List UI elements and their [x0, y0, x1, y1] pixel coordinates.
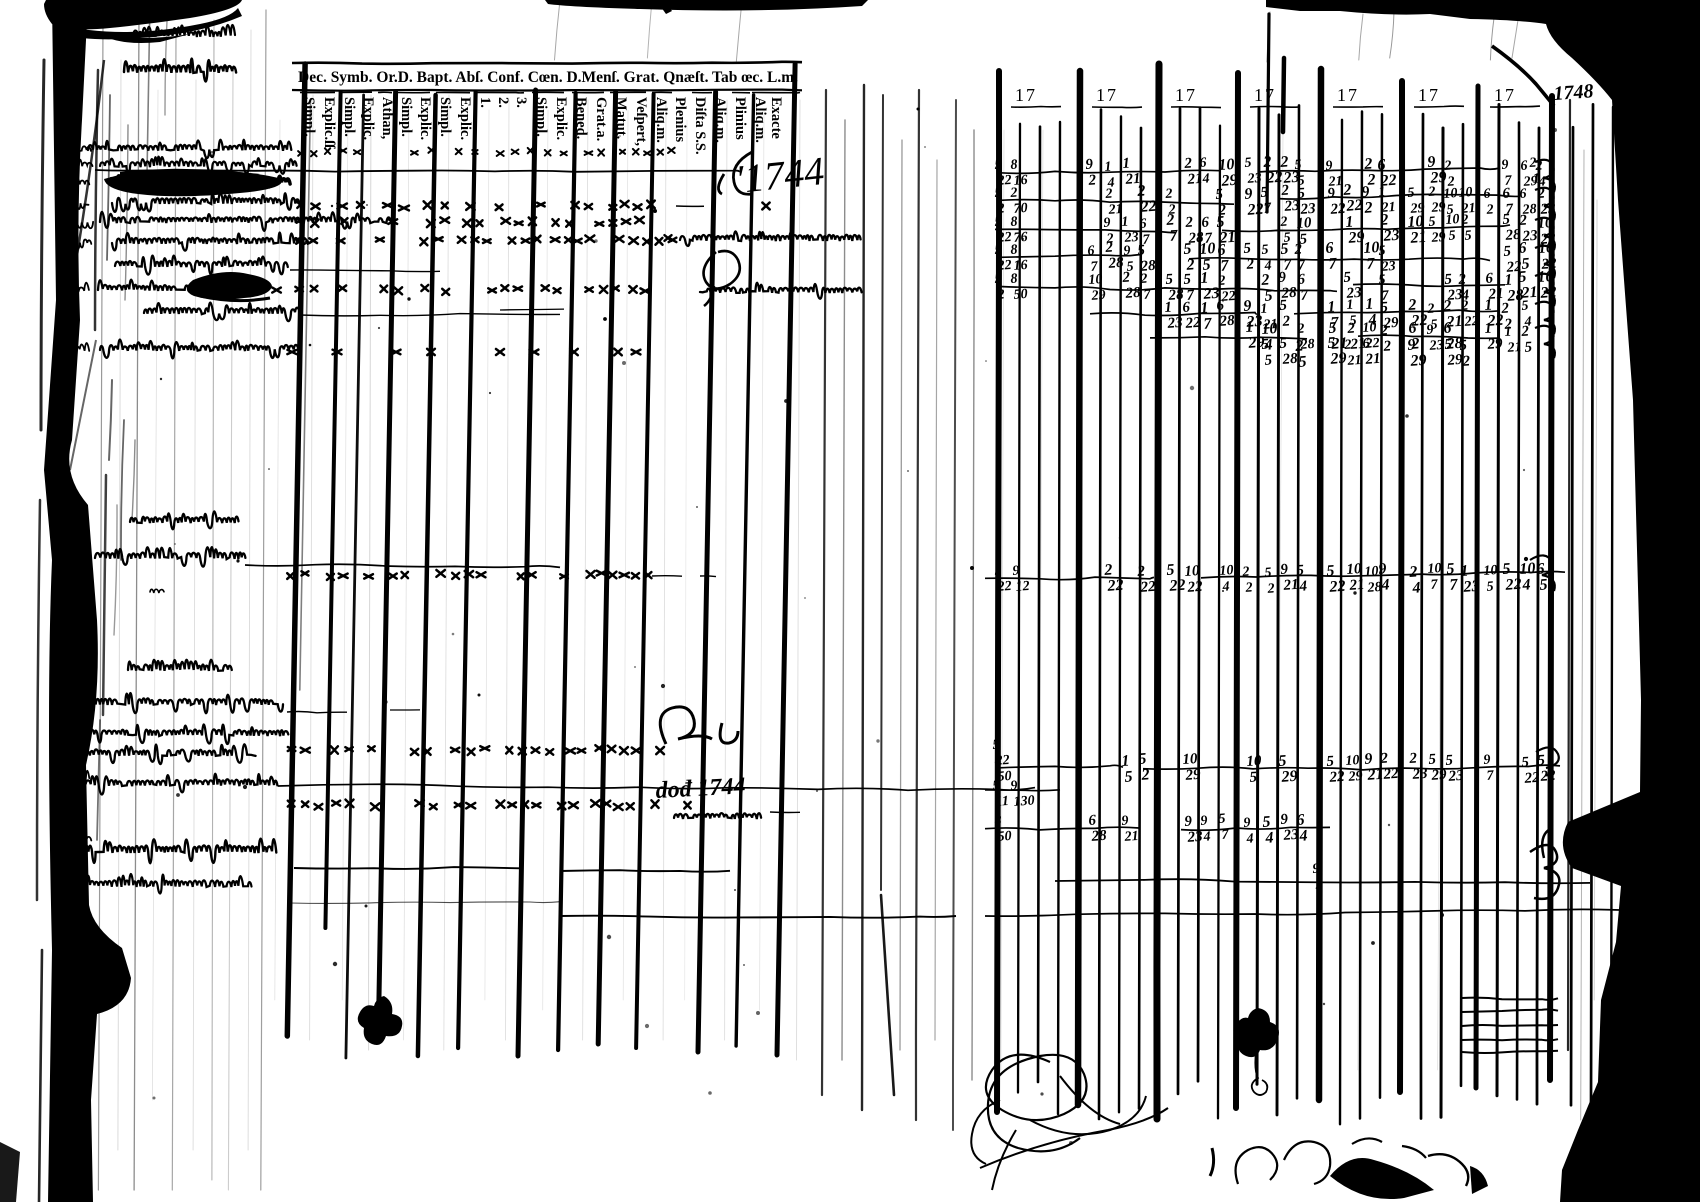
svg-text:28: 28 — [1218, 313, 1236, 330]
svg-text:1: 1 — [1504, 325, 1512, 340]
svg-text:22: 22 — [1184, 315, 1202, 332]
svg-text:22: 22 — [1139, 198, 1157, 216]
svg-text:2: 2 — [1262, 153, 1272, 171]
svg-text:6: 6 — [1139, 217, 1147, 232]
svg-text:2: 2 — [1293, 241, 1303, 258]
svg-text:9: 9 — [1427, 153, 1436, 171]
svg-text:29: 29 — [1347, 769, 1363, 785]
svg-text:6: 6 — [1377, 156, 1386, 174]
svg-text:2: 2 — [1379, 211, 1389, 229]
svg-text:2: 2 — [1121, 269, 1131, 286]
svg-text:8: 8 — [1010, 272, 1018, 287]
svg-text:2: 2 — [1408, 563, 1418, 581]
svg-text:2: 2 — [1244, 580, 1253, 596]
svg-text:2: 2 — [1518, 212, 1528, 229]
svg-text:2: 2 — [1164, 187, 1173, 203]
svg-text:29: 29 — [1430, 230, 1446, 246]
svg-text:5: 5 — [1521, 299, 1529, 314]
svg-text:5: 5 — [1166, 561, 1175, 579]
svg-text:10: 10 — [1088, 272, 1103, 288]
svg-text:2: 2 — [1363, 155, 1373, 173]
svg-text:21: 21 — [1186, 171, 1203, 188]
svg-text:5: 5 — [1280, 240, 1289, 258]
svg-text:22: 22 — [1523, 770, 1541, 787]
svg-text:5: 5 — [1298, 353, 1307, 371]
svg-text:21: 21 — [1366, 766, 1384, 784]
svg-text:Simpl.: Simpl. — [398, 97, 414, 137]
svg-text:9: 9 — [1103, 216, 1111, 231]
svg-text:23: 23 — [1462, 578, 1480, 596]
svg-text:9: 9 — [1325, 159, 1333, 174]
svg-text:1.: 1. — [477, 97, 493, 108]
svg-text:22: 22 — [1139, 579, 1157, 596]
svg-text:5: 5 — [1378, 244, 1386, 259]
svg-text:1: 1 — [1378, 185, 1386, 200]
svg-text:2: 2 — [1103, 561, 1113, 579]
svg-text:5: 5 — [1539, 576, 1548, 594]
svg-text:10: 10 — [1364, 564, 1379, 580]
svg-text:29: 29 — [1409, 352, 1427, 370]
svg-text:9: 9 — [1244, 185, 1253, 203]
svg-text:5: 5 — [1428, 215, 1436, 230]
svg-text:2: 2 — [1266, 581, 1275, 597]
svg-text:2: 2 — [1087, 172, 1097, 189]
svg-text:17: 17 — [1494, 85, 1516, 105]
svg-text:3.: 3. — [513, 97, 529, 108]
svg-text:22: 22 — [1382, 766, 1400, 783]
svg-text:1: 1 — [1121, 215, 1129, 230]
svg-text:8: 8 — [1010, 243, 1018, 258]
svg-text:9: 9 — [1501, 158, 1509, 173]
svg-text:4: 4 — [1298, 827, 1308, 845]
svg-text:28: 28 — [1090, 828, 1108, 845]
svg-text:29: 29 — [1430, 767, 1448, 784]
svg-text:22: 22 — [1328, 769, 1346, 786]
svg-text:21: 21 — [1506, 340, 1522, 356]
svg-text:8: 8 — [1010, 158, 1018, 173]
svg-text:1: 1 — [1484, 296, 1493, 314]
svg-text:5: 5 — [1262, 813, 1271, 831]
svg-text:5: 5 — [994, 186, 1002, 201]
svg-text:5: 5 — [992, 779, 1000, 794]
svg-text:9: 9 — [1426, 323, 1434, 338]
svg-text:12: 12 — [1015, 579, 1030, 595]
svg-text:6: 6 — [1483, 187, 1491, 202]
svg-text:10: 10 — [1445, 212, 1460, 228]
svg-text:5: 5 — [994, 215, 1002, 230]
svg-text:6: 6 — [1443, 319, 1452, 337]
svg-text:29: 29 — [1446, 352, 1464, 369]
svg-text:2: 2 — [1379, 322, 1389, 339]
svg-text:10: 10 — [1427, 561, 1442, 577]
svg-text:29: 29 — [1486, 336, 1504, 353]
svg-text:6: 6 — [1408, 319, 1417, 337]
svg-text:9: 9 — [1364, 750, 1373, 768]
svg-text:5: 5 — [1327, 334, 1336, 352]
svg-text:2: 2 — [1279, 215, 1288, 231]
svg-text:21: 21 — [1364, 351, 1381, 368]
svg-text:1: 1 — [1104, 160, 1112, 175]
svg-text:1: 1 — [1365, 295, 1374, 313]
svg-text:2: 2 — [1104, 187, 1113, 203]
svg-text:2: 2 — [1520, 323, 1530, 340]
svg-text:9: 9 — [1312, 862, 1320, 877]
svg-text:23: 23 — [1447, 768, 1465, 785]
svg-text:6: 6 — [1296, 811, 1305, 829]
svg-text:9: 9 — [1361, 183, 1370, 201]
svg-text:29: 29 — [1184, 767, 1202, 784]
svg-text:2: 2 — [1314, 877, 1323, 893]
svg-text:Diſta S.S.: Diſta S.S. — [692, 97, 708, 155]
svg-text:1: 1 — [1460, 562, 1469, 580]
svg-text:9: 9 — [1407, 336, 1416, 354]
svg-text:2: 2 — [1346, 320, 1356, 337]
svg-text:5: 5 — [994, 158, 1002, 173]
svg-text:2: 2 — [1442, 297, 1452, 315]
svg-text:10: 10 — [1519, 560, 1536, 578]
svg-text:9: 9 — [1483, 753, 1491, 768]
svg-text:2: 2 — [1165, 211, 1175, 229]
svg-text:5: 5 — [1486, 579, 1494, 594]
svg-text:17: 17 — [1096, 85, 1118, 105]
svg-text:10: 10 — [1296, 215, 1313, 232]
svg-text:2: 2 — [1342, 181, 1352, 199]
svg-text:1: 1 — [1200, 269, 1209, 287]
svg-text:1: 1 — [1532, 171, 1540, 186]
svg-text:9: 9 — [1012, 564, 1020, 579]
svg-text:2: 2 — [1183, 155, 1193, 172]
svg-text:4: 4 — [1245, 831, 1254, 847]
svg-text:9: 9 — [1378, 560, 1387, 578]
svg-text:2: 2 — [1104, 239, 1114, 256]
svg-text:5: 5 — [1407, 186, 1415, 201]
svg-text:5: 5 — [992, 738, 1000, 753]
svg-text:28: 28 — [1124, 285, 1142, 302]
svg-text:9: 9 — [1123, 244, 1131, 259]
svg-text:2: 2 — [1140, 766, 1150, 784]
svg-text:2: 2 — [1296, 322, 1305, 338]
svg-text:5: 5 — [1502, 560, 1511, 578]
svg-text:1: 1 — [1164, 300, 1173, 316]
svg-text:10: 10 — [1443, 186, 1458, 202]
svg-text:2: 2 — [1139, 272, 1148, 288]
svg-text:5: 5 — [1446, 560, 1455, 578]
svg-text:1: 1 — [1260, 302, 1268, 317]
svg-text:6: 6 — [1087, 244, 1095, 259]
svg-text:Grat.a.: Grat.a. — [593, 97, 609, 141]
svg-text:2: 2 — [1443, 159, 1452, 175]
svg-text:50: 50 — [1013, 287, 1028, 303]
svg-text:2: 2 — [1279, 153, 1289, 171]
svg-text:10: 10 — [1362, 320, 1377, 336]
svg-text:6: 6 — [1199, 156, 1207, 171]
svg-text:23: 23 — [1382, 227, 1400, 245]
svg-text:5: 5 — [994, 564, 1002, 579]
svg-text:5: 5 — [1124, 768, 1133, 786]
svg-text:10: 10 — [1346, 561, 1363, 578]
svg-text:22: 22 — [1246, 201, 1264, 219]
svg-text:Explic.: Explic. — [553, 97, 569, 140]
svg-text:2: 2 — [1217, 274, 1226, 290]
svg-text:4: 4 — [1201, 171, 1210, 187]
svg-text:2: 2 — [1363, 199, 1373, 217]
svg-text:Explic.: Explic. — [417, 97, 433, 140]
svg-text:2: 2 — [1426, 302, 1435, 318]
svg-text:6: 6 — [1217, 241, 1226, 259]
svg-text:1: 1 — [1504, 271, 1513, 289]
svg-text:9: 9 — [1010, 779, 1018, 794]
svg-text:22: 22 — [1106, 577, 1124, 595]
svg-text:5: 5 — [1264, 566, 1272, 581]
svg-text:2: 2 — [1343, 338, 1352, 354]
svg-text:21: 21 — [1348, 577, 1365, 594]
svg-text:4: 4 — [1411, 579, 1421, 597]
svg-text:1: 1 — [1346, 298, 1354, 313]
svg-text:21: 21 — [1346, 353, 1362, 369]
svg-text:5: 5 — [1464, 228, 1472, 243]
svg-text:2: 2 — [1281, 313, 1291, 330]
svg-text:21: 21 — [1123, 829, 1139, 845]
svg-text:1: 1 — [1484, 321, 1493, 337]
svg-text:1: 1 — [1345, 213, 1354, 231]
svg-text:5: 5 — [1216, 213, 1225, 231]
svg-text:5: 5 — [1218, 812, 1226, 827]
svg-text:2: 2 — [1457, 271, 1467, 288]
svg-text:130: 130 — [1013, 793, 1035, 809]
svg-text:2: 2 — [1408, 750, 1418, 767]
svg-text:2: 2 — [1009, 186, 1018, 202]
svg-text:5: 5 — [1138, 750, 1147, 768]
svg-text:8: 8 — [1010, 215, 1018, 230]
svg-text:4: 4 — [1202, 829, 1211, 845]
svg-text:2: 2 — [1382, 338, 1392, 355]
svg-text:2: 2 — [1427, 185, 1436, 201]
svg-text:2: 2 — [1260, 271, 1270, 289]
svg-text:4: 4 — [1298, 578, 1308, 595]
svg-text:4: 4 — [1264, 829, 1274, 847]
svg-text:5: 5 — [994, 272, 1002, 287]
svg-text:10: 10 — [1458, 185, 1473, 201]
svg-text:4: 4 — [1221, 579, 1230, 595]
svg-text:10: 10 — [1483, 563, 1498, 579]
svg-text:8: 8 — [994, 754, 1002, 769]
svg-text:11: 11 — [995, 794, 1009, 810]
svg-text:5: 5 — [1518, 268, 1527, 286]
svg-text:10: 10 — [1246, 753, 1263, 770]
svg-text:dοđ 1744: dοđ 1744 — [655, 773, 746, 804]
svg-text:5: 5 — [1183, 240, 1192, 258]
svg-text:23: 23 — [1186, 829, 1204, 846]
svg-text:29: 29 — [1280, 768, 1298, 786]
svg-text:Veſpert,: Veſpert, — [633, 97, 649, 146]
svg-text:22: 22 — [996, 579, 1012, 595]
svg-text:17: 17 — [1254, 85, 1276, 105]
svg-text:9: 9 — [1121, 814, 1129, 829]
svg-text:10: 10 — [1219, 563, 1234, 579]
svg-text:2: 2 — [1184, 214, 1194, 231]
svg-text:2: 2 — [1485, 202, 1494, 218]
svg-text:Plenius: Plenius — [672, 97, 688, 142]
svg-text:17: 17 — [1337, 85, 1359, 105]
svg-text:Simpl.: Simpl. — [437, 97, 453, 137]
svg-text:17: 17 — [1015, 85, 1037, 105]
svg-text:2: 2 — [1241, 565, 1250, 581]
svg-text:1: 1 — [1245, 318, 1254, 336]
svg-text:2: 2 — [1407, 296, 1417, 314]
svg-text:4: 4 — [1521, 576, 1531, 594]
svg-text:22: 22 — [1345, 197, 1363, 215]
svg-text:5: 5 — [1326, 562, 1335, 580]
svg-text:22: 22 — [1539, 768, 1557, 785]
svg-text:Explic.ſſ: Explic.ſſ — [321, 97, 337, 149]
svg-text:1: 1 — [1200, 299, 1209, 317]
svg-text:5: 5 — [1294, 158, 1302, 173]
svg-text:5: 5 — [1448, 228, 1456, 243]
svg-text:2: 2 — [1528, 156, 1537, 172]
svg-text:23: 23 — [1428, 338, 1444, 354]
svg-text:10: 10 — [1182, 751, 1199, 768]
svg-text:2: 2 — [996, 287, 1005, 303]
svg-text:2: 2 — [1245, 256, 1255, 273]
svg-text:22: 22 — [1186, 579, 1204, 596]
svg-text:Dec. Symb. Or.D. Bapt. Abſ.: Dec. Symb. Or.D. Bapt. Abſ. Conf. Cœn. D… — [298, 69, 798, 86]
svg-text:22: 22 — [1463, 314, 1479, 330]
svg-text:23: 23 — [1282, 827, 1300, 844]
svg-text:6: 6 — [1520, 159, 1528, 174]
svg-text:29: 29 — [1090, 288, 1106, 304]
svg-text:9: 9 — [1243, 297, 1252, 315]
svg-text:29: 29 — [1430, 200, 1446, 216]
svg-text:22: 22 — [1168, 577, 1186, 595]
svg-text:2: 2 — [1136, 563, 1146, 580]
svg-text:2: 2 — [1379, 750, 1389, 767]
svg-text:21: 21 — [1409, 229, 1427, 247]
svg-text:4: 4 — [1380, 576, 1390, 594]
svg-text:5: 5 — [1378, 273, 1386, 288]
svg-text:22: 22 — [1504, 576, 1522, 594]
svg-text:2.: 2. — [495, 97, 511, 108]
svg-text:28: 28 — [1366, 580, 1382, 596]
svg-text:1: 1 — [1122, 156, 1131, 172]
svg-text:2: 2 — [1280, 182, 1290, 199]
svg-text:10: 10 — [1261, 320, 1278, 338]
svg-text:6: 6 — [1518, 239, 1527, 257]
svg-text:Simpl.: Simpl. — [341, 97, 357, 137]
svg-text:5: 5 — [1261, 243, 1269, 258]
svg-text:10: 10 — [1199, 240, 1216, 258]
svg-text:6: 6 — [1519, 187, 1527, 202]
svg-text:1748: 1748 — [1553, 80, 1594, 105]
svg-text:8: 8 — [994, 814, 1002, 829]
svg-text:2: 2 — [1500, 300, 1510, 317]
svg-text:17: 17 — [1418, 85, 1440, 105]
svg-text:2: 2 — [1461, 353, 1471, 370]
svg-text:2: 2 — [1136, 182, 1146, 200]
svg-text:2: 2 — [1460, 299, 1469, 315]
svg-text:17: 17 — [1175, 85, 1197, 105]
svg-text:9: 9 — [1200, 814, 1208, 829]
svg-text:10: 10 — [1345, 753, 1360, 769]
svg-text:22: 22 — [1328, 578, 1346, 596]
svg-text:2: 2 — [1460, 213, 1469, 229]
svg-text:23: 23 — [1166, 315, 1184, 332]
svg-text:5: 5 — [1244, 156, 1252, 171]
svg-text:Explic.: Explic. — [457, 97, 473, 140]
svg-text:21: 21 — [1282, 577, 1299, 594]
svg-text:5: 5 — [1278, 752, 1287, 770]
svg-text:5: 5 — [994, 243, 1002, 258]
svg-text:29: 29 — [1220, 172, 1238, 190]
svg-text:1: 1 — [1121, 752, 1130, 770]
svg-text:6: 6 — [1325, 239, 1334, 257]
svg-text:2: 2 — [1294, 337, 1304, 355]
svg-text:Plinius: Plinius — [732, 97, 748, 140]
svg-text:Exacte: Exacte — [768, 97, 784, 139]
svg-text:23: 23 — [1411, 766, 1429, 783]
svg-text:1: 1 — [1327, 298, 1336, 316]
svg-text:9: 9 — [1243, 816, 1251, 831]
svg-text:50: 50 — [997, 829, 1012, 845]
svg-text:10: 10 — [1184, 563, 1201, 580]
